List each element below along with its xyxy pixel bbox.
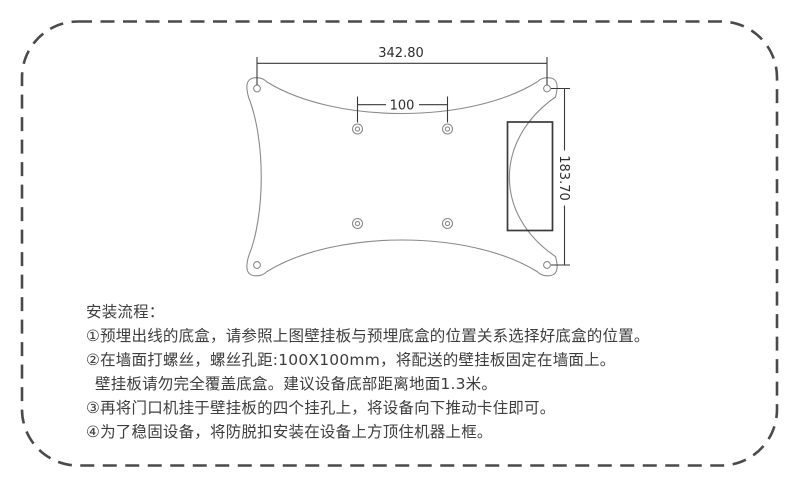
screw-hole-inner — [355, 221, 359, 225]
dim-width-label: 342.80 — [378, 46, 424, 61]
screw-hole-bottom-left — [353, 219, 363, 229]
instruction-step-4: ④为了稳固设备，将防脱扣安装在设备上方顶住机器上框。 — [86, 420, 754, 444]
screw-hole-outer — [443, 219, 453, 229]
screw-hole-outer — [353, 219, 363, 229]
screw-hole-inner — [445, 127, 449, 131]
dim-width: 342.80 — [257, 46, 547, 85]
instruction-step-3: ③再将门口机挂于壁挂板的四个挂孔上，将设备向下推动卡住即可。 — [86, 396, 754, 420]
screw-hole-top-right — [443, 124, 453, 134]
screw-hole-outer — [353, 124, 363, 134]
manual-page: 342.80 100 183.70 安装流程： ①预埋出线的底盒，请参照上图壁挂… — [0, 0, 800, 492]
instruction-step-2-continuation: 壁挂板请勿完全覆盖底盒。建议设备底部距离地面1.3米。 — [86, 372, 754, 396]
instructions-title: 安装流程： — [86, 300, 754, 324]
corner-hanging-hole-top-left — [254, 85, 261, 92]
corner-hanging-hole-top-right — [544, 85, 551, 92]
corner-hanging-hole-bottom-left — [254, 262, 261, 269]
screw-hole-bottom-right — [443, 219, 453, 229]
dim-height: 183.70 — [551, 89, 571, 266]
corner-hanging-hole-bottom-right — [544, 262, 551, 269]
screw-hole-top-left — [353, 124, 363, 134]
screw-hole-inner — [355, 127, 359, 131]
instruction-step-2: ②在墙面打螺丝，螺丝孔距:100X100mm，将配送的壁挂板固定在墙面上。 — [86, 348, 754, 372]
screw-hole-inner — [445, 221, 449, 225]
dim-hole-spacing-label: 100 — [390, 98, 415, 113]
dim-height-label: 183.70 — [556, 155, 571, 201]
instructions-block: 安装流程： ①预埋出线的底盒，请参照上图壁挂板与预埋底盒的位置关系选择好底盒的位… — [86, 300, 754, 444]
junction-box-outline — [508, 122, 553, 231]
screw-hole-outer — [443, 124, 453, 134]
instruction-step-1: ①预埋出线的底盒，请参照上图壁挂板与预埋底盒的位置关系选择好底盒的位置。 — [86, 324, 754, 348]
dim-hole-spacing: 100 — [358, 97, 448, 123]
